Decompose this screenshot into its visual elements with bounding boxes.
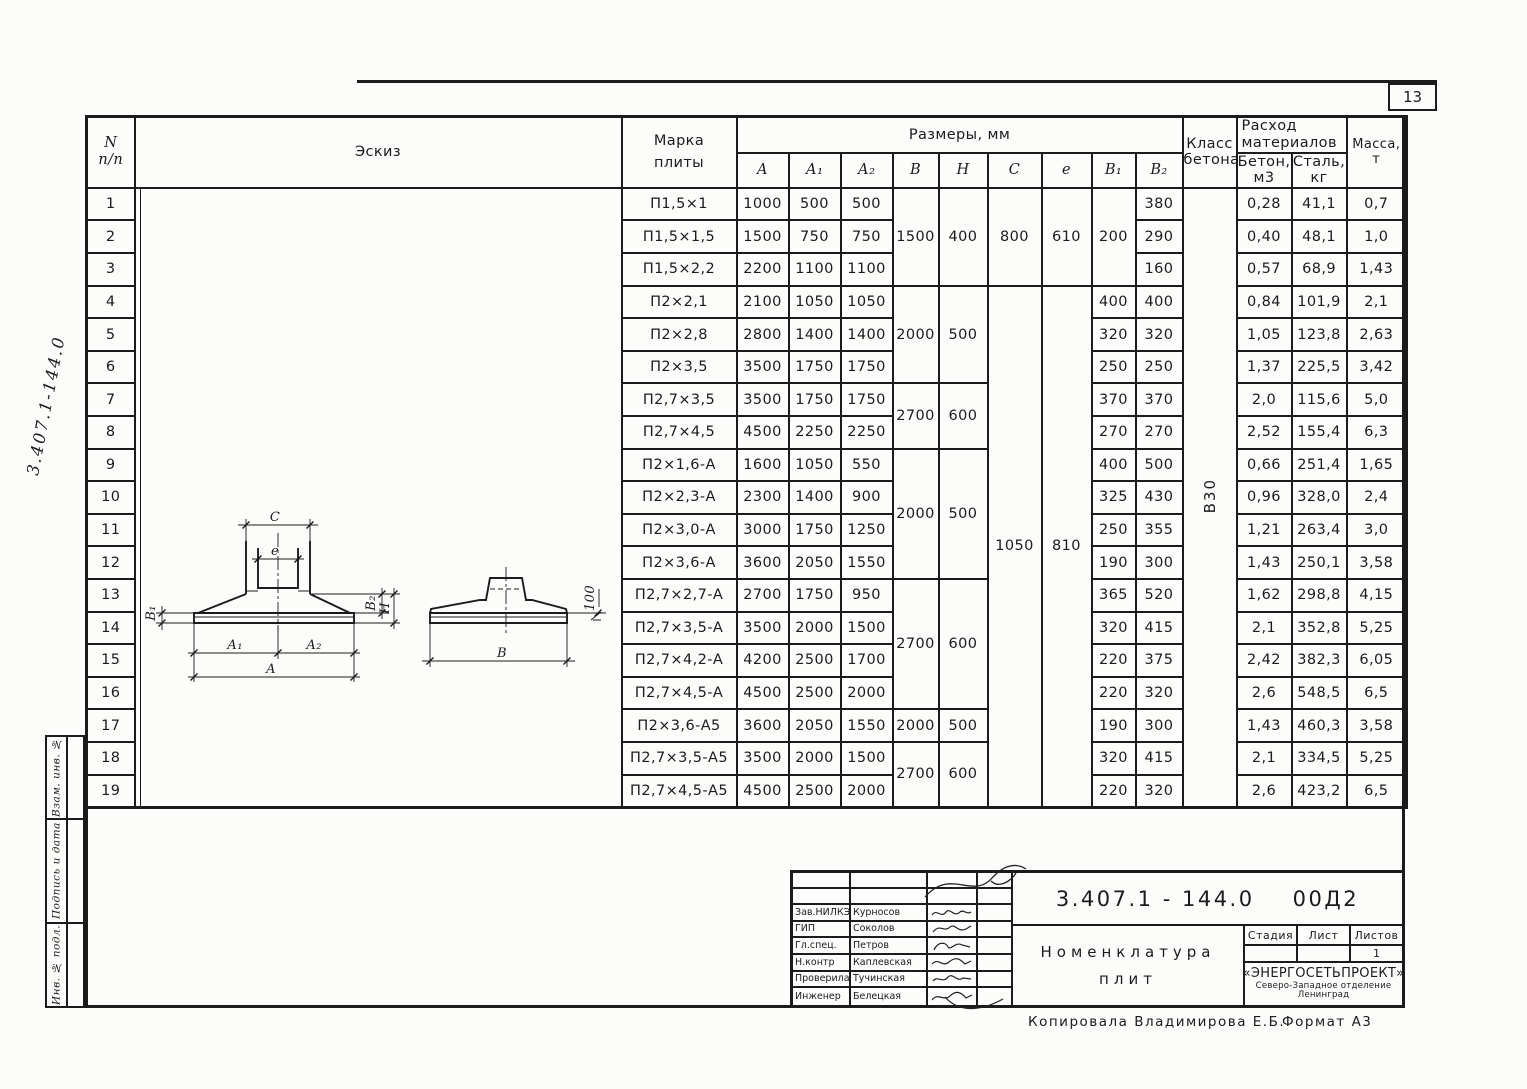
cell-h: 400	[939, 188, 988, 286]
sheets-label: Листов	[1351, 926, 1402, 944]
cell-n: 6	[87, 351, 135, 384]
cell-b: 2000	[893, 709, 939, 742]
cell-beton: 1,21	[1237, 514, 1292, 547]
cell-stal: 298,8	[1292, 579, 1347, 612]
cell-b1: 250	[1092, 351, 1136, 384]
cell-n: 19	[87, 775, 135, 808]
cell-a2: 500	[841, 188, 893, 221]
cell-n: 11	[87, 514, 135, 547]
cell-a2: 2000	[841, 775, 893, 808]
cell-stal: 68,9	[1292, 253, 1347, 286]
signature-scribble	[928, 972, 978, 989]
cell-massa: 5,0	[1347, 383, 1407, 416]
header-col-b1: В₁	[1092, 153, 1136, 188]
cell-stal: 328,0	[1292, 481, 1347, 514]
stage-label: Стадия	[1245, 926, 1298, 944]
cell-a: 2200	[737, 253, 789, 286]
cell-b1: 320	[1092, 742, 1136, 775]
header-col-c: С	[988, 153, 1042, 188]
cell-beton: 0,28	[1237, 188, 1292, 221]
stamp-label-vzam: Взам. инв. №	[47, 737, 66, 818]
cell-beton: 0,66	[1237, 449, 1292, 482]
sig-role: Проверила	[793, 972, 851, 989]
cell-h: 500	[939, 449, 988, 579]
cell-b1: 320	[1092, 318, 1136, 351]
cell-b2: 320	[1136, 318, 1183, 351]
sig-name: Петров	[851, 938, 928, 955]
cell-a1: 1750	[789, 579, 841, 612]
cell-b2: 380	[1136, 188, 1183, 221]
cell-c: 1050	[988, 286, 1042, 808]
cell-beton: 1,43	[1237, 546, 1292, 579]
dim-label-e: е	[270, 544, 278, 559]
cell-massa: 6,5	[1347, 677, 1407, 710]
cell-massa: 3,42	[1347, 351, 1407, 384]
cell-beton: 2,0	[1237, 383, 1292, 416]
cell-marka: П2×2,3-А	[622, 481, 737, 514]
header-col-b2: В₂	[1136, 153, 1183, 188]
cell-massa: 3,0	[1347, 514, 1407, 547]
dim-label-h: Н	[378, 602, 393, 615]
cell-marka: П2,7×3,5-А5	[622, 742, 737, 775]
cell-marka: П2×2,8	[622, 318, 737, 351]
cell-marka: П2×3,6-А	[622, 546, 737, 579]
cell-stal: 548,5	[1292, 677, 1347, 710]
cell-massa: 1,65	[1347, 449, 1407, 482]
sketch-centerlines	[278, 533, 506, 633]
cell-a1: 1050	[789, 286, 841, 319]
cell-beton: 1,43	[1237, 709, 1292, 742]
cell-massa: 5,25	[1347, 742, 1407, 775]
page-number-box: 13	[1388, 83, 1437, 111]
organization-name: «ЭНЕРГОСЕТЬПРОЕКТ»	[1243, 967, 1405, 982]
cell-a: 4500	[737, 416, 789, 449]
cell-marka: П2,7×4,2-А	[622, 644, 737, 677]
cell-a1: 2000	[789, 742, 841, 775]
document-title: Номенклатура плит	[1013, 926, 1245, 1005]
cell-a1: 1050	[789, 449, 841, 482]
document-suffix: 00Д2	[1293, 887, 1360, 911]
cell-marka: П2×3,5	[622, 351, 737, 384]
cell-stal: 155,4	[1292, 416, 1347, 449]
cell-beton: 0,57	[1237, 253, 1292, 286]
cell-stal: 334,5	[1292, 742, 1347, 775]
cell-n: 9	[87, 449, 135, 482]
cell-massa: 5,25	[1347, 612, 1407, 645]
header-col-a: А	[737, 153, 789, 188]
sheets-value: 1	[1351, 946, 1402, 961]
cell-a: 3500	[737, 351, 789, 384]
cell-a2: 1550	[841, 709, 893, 742]
cell-beton: 0,96	[1237, 481, 1292, 514]
cell-massa: 4,15	[1347, 579, 1407, 612]
cell-beton: 2,1	[1237, 612, 1292, 645]
document-number: 3.407.1 - 144.0	[1056, 887, 1255, 911]
stamp-box-podpis: Подпись и дата	[45, 818, 85, 924]
cell-a2: 1500	[841, 612, 893, 645]
header-sizes: Размеры, мм	[737, 117, 1183, 153]
cell-n: 3	[87, 253, 135, 286]
cell-stal: 48,1	[1292, 220, 1347, 253]
cell-stal: 101,9	[1292, 286, 1347, 319]
cell-a2: 1100	[841, 253, 893, 286]
cell-b: 2000	[893, 286, 939, 384]
stamp-box-inv: Инв. № подл.	[45, 922, 85, 1008]
cell-stal: 251,4	[1292, 449, 1347, 482]
signature-grid: Зав.НИЛКЭ Курносов ГИП Соколов Гл.спец. …	[793, 873, 1013, 1005]
cell-a1: 1400	[789, 318, 841, 351]
cell-a: 2300	[737, 481, 789, 514]
cell-a: 3600	[737, 709, 789, 742]
cell-stal: 250,1	[1292, 546, 1347, 579]
sketch-side-view-outline	[430, 578, 567, 623]
cell-marka: П2,7×3,5	[622, 383, 737, 416]
cell-beton: 2,42	[1237, 644, 1292, 677]
cell-a2: 2250	[841, 416, 893, 449]
cell-b: 2700	[893, 579, 939, 709]
cell-b2: 415	[1136, 612, 1183, 645]
cell-beton: 2,6	[1237, 775, 1292, 808]
cell-b2: 355	[1136, 514, 1183, 547]
cell-a1: 500	[789, 188, 841, 221]
cell-a2: 1400	[841, 318, 893, 351]
cell-n: 13	[87, 579, 135, 612]
cell-n: 5	[87, 318, 135, 351]
cell-concrete-class: В30	[1183, 188, 1237, 807]
cell-a: 1500	[737, 220, 789, 253]
stamp-box-vzam: Взам. инв. №	[45, 735, 85, 820]
sheet-label: Лист	[1298, 926, 1351, 944]
cell-stal: 225,5	[1292, 351, 1347, 384]
cell-a1: 2050	[789, 709, 841, 742]
cell-n: 10	[87, 481, 135, 514]
dim-label-b1: В₁	[144, 605, 159, 622]
stage-values-row: 1	[1245, 946, 1402, 963]
cell-b2: 290	[1136, 220, 1183, 253]
cell-n: 8	[87, 416, 135, 449]
title-block: Зав.НИЛКЭ Курносов ГИП Соколов Гл.спец. …	[790, 870, 1405, 1008]
sig-role: Инженер	[793, 988, 851, 1005]
dim-label-a: А	[264, 662, 275, 677]
cell-a1: 1750	[789, 351, 841, 384]
sketch-cell: С е В₁ В₂ Н А₁ А₂ А В 100	[135, 188, 622, 807]
cell-stal: 41,1	[1292, 188, 1347, 221]
cell-a1: 2500	[789, 644, 841, 677]
nomenclature-table: N п/п Эскиз Марка плиты Размеры, мм Клас…	[85, 115, 1408, 809]
cell-beton: 1,37	[1237, 351, 1292, 384]
cell-a2: 1700	[841, 644, 893, 677]
cell-b1: 220	[1092, 775, 1136, 808]
page-number: 13	[1403, 88, 1422, 106]
header-steel: Сталь, кг	[1292, 153, 1347, 188]
cell-b1: 270	[1092, 416, 1136, 449]
cell-beton: 1,62	[1237, 579, 1292, 612]
cell-a: 1600	[737, 449, 789, 482]
cell-b2: 250	[1136, 351, 1183, 384]
header-marka: Марка плиты	[622, 117, 737, 188]
sig-role: Н.контр	[793, 955, 851, 972]
cell-stal: 382,3	[1292, 644, 1347, 677]
header-col-h: Н	[939, 153, 988, 188]
cell-marka: П2×3,6-А5	[622, 709, 737, 742]
cell-a2: 750	[841, 220, 893, 253]
cell-marka: П2×1,6-А	[622, 449, 737, 482]
header-col-a2: А₂	[841, 153, 893, 188]
cell-a2: 1750	[841, 383, 893, 416]
cell-n: 4	[87, 286, 135, 319]
cell-stal: 352,8	[1292, 612, 1347, 645]
cell-a: 2800	[737, 318, 789, 351]
header-col-b: В	[893, 153, 939, 188]
cell-marka: П2,7×4,5	[622, 416, 737, 449]
cell-a2: 2000	[841, 677, 893, 710]
cell-b2: 520	[1136, 579, 1183, 612]
cell-massa: 2,4	[1347, 481, 1407, 514]
cell-marka: П2×3,0-А	[622, 514, 737, 547]
cell-stal: 123,8	[1292, 318, 1347, 351]
cell-e: 610	[1042, 188, 1092, 286]
organization-box: «ЭНЕРГОСЕТЬПРОЕКТ» Северо-Западное отдел…	[1245, 963, 1402, 1005]
cell-marka: П1,5×1,5	[622, 220, 737, 253]
cell-a1: 750	[789, 220, 841, 253]
cell-n: 17	[87, 709, 135, 742]
cell-a: 1000	[737, 188, 789, 221]
sig-role: Гл.спец.	[793, 938, 851, 955]
side-document-number: 3.407.1-144.0	[22, 329, 70, 482]
cell-marka: П2,7×4,5-А5	[622, 775, 737, 808]
cell-a1: 1750	[789, 383, 841, 416]
cell-massa: 1,43	[1347, 253, 1407, 286]
cell-b2: 415	[1136, 742, 1183, 775]
dim-label-b2: В₂	[364, 595, 379, 612]
cell-a1: 2250	[789, 416, 841, 449]
signature-scribble	[928, 938, 978, 955]
header-sketch: Эскиз	[135, 117, 622, 188]
cell-a2: 1500	[841, 742, 893, 775]
cell-a1: 2500	[789, 775, 841, 808]
cell-h: 600	[939, 742, 988, 807]
cell-b: 2700	[893, 383, 939, 448]
copied-by-note: Копировала Владимирова Е.Б.	[1028, 1014, 1285, 1030]
dim-label-c: С	[269, 510, 279, 525]
cell-beton: 2,6	[1237, 677, 1292, 710]
cell-b1: 220	[1092, 644, 1136, 677]
cell-a1: 2050	[789, 546, 841, 579]
cell-beton: 1,05	[1237, 318, 1292, 351]
signature-scribble	[928, 905, 978, 922]
cell-b1: 325	[1092, 481, 1136, 514]
cell-b1: 250	[1092, 514, 1136, 547]
signature-scribble	[928, 955, 978, 972]
cell-h: 500	[939, 709, 988, 742]
cell-beton: 2,52	[1237, 416, 1292, 449]
cell-b2: 400	[1136, 286, 1183, 319]
cell-a: 3600	[737, 546, 789, 579]
sig-role: Зав.НИЛКЭ	[793, 905, 851, 922]
sig-name: Белецкая	[851, 988, 928, 1005]
cell-marka: П2,7×4,5-А	[622, 677, 737, 710]
sheet-value	[1298, 946, 1351, 961]
cell-b2: 320	[1136, 775, 1183, 808]
sheet-top-border	[357, 80, 1437, 83]
cell-marka: П2,7×3,5-А	[622, 612, 737, 645]
cell-b2: 320	[1136, 677, 1183, 710]
cell-h: 600	[939, 383, 988, 448]
dim-label-b: В	[496, 646, 507, 661]
cell-n: 1	[87, 188, 135, 221]
plate-sketch: С е В₁ В₂ Н А₁ А₂ А В 100	[142, 501, 614, 693]
cell-b1: 365	[1092, 579, 1136, 612]
sig-name: Соколов	[851, 922, 928, 939]
header-mass: Масса, т	[1347, 117, 1407, 188]
cell-massa: 2,1	[1347, 286, 1407, 319]
cell-h: 600	[939, 579, 988, 709]
drawing-sheet: { "page": { "number": "13", "side_number…	[0, 0, 1527, 1089]
cell-b2: 430	[1136, 481, 1183, 514]
cell-beton: 2,1	[1237, 742, 1292, 775]
cell-n: 18	[87, 742, 135, 775]
cell-n: 7	[87, 383, 135, 416]
dim-label-slope: 100	[583, 585, 598, 611]
dim-label-a1: А₁	[226, 638, 243, 653]
cell-a2: 1050	[841, 286, 893, 319]
header-col-a1: А₁	[789, 153, 841, 188]
cell-b2: 500	[1136, 449, 1183, 482]
cell-stal: 423,2	[1292, 775, 1347, 808]
cell-a: 3500	[737, 612, 789, 645]
cell-a2: 950	[841, 579, 893, 612]
cell-massa: 1,0	[1347, 220, 1407, 253]
cell-b2: 160	[1136, 253, 1183, 286]
sig-role: ГИП	[793, 922, 851, 939]
sig-name: Тучинская	[851, 972, 928, 989]
stage-header-row: Стадия Лист Листов	[1245, 926, 1402, 946]
sig-name: Каплевская	[851, 955, 928, 972]
sig-name: Курносов	[851, 905, 928, 922]
cell-massa: 2,63	[1347, 318, 1407, 351]
cell-b: 2000	[893, 449, 939, 579]
cell-beton: 0,84	[1237, 286, 1292, 319]
cell-b2: 370	[1136, 383, 1183, 416]
cell-b1: 200	[1092, 188, 1136, 286]
document-number-box: 3.407.1 - 144.0 00Д2	[1013, 873, 1402, 926]
cell-a1: 2500	[789, 677, 841, 710]
cell-a2: 1250	[841, 514, 893, 547]
organization-city: Ленинград	[1298, 991, 1350, 1001]
cell-a1: 2000	[789, 612, 841, 645]
cell-b2: 270	[1136, 416, 1183, 449]
cell-stal: 115,6	[1292, 383, 1347, 416]
cell-a: 3500	[737, 742, 789, 775]
cell-a2: 900	[841, 481, 893, 514]
cell-massa: 6,05	[1347, 644, 1407, 677]
stamp-label-podpis: Подпись и дата	[47, 820, 66, 922]
cell-a: 2700	[737, 579, 789, 612]
cell-b1: 220	[1092, 677, 1136, 710]
cell-n: 12	[87, 546, 135, 579]
cell-a: 4500	[737, 775, 789, 808]
cell-a: 3500	[737, 383, 789, 416]
cell-n: 14	[87, 612, 135, 645]
cell-b1: 320	[1092, 612, 1136, 645]
cell-b2: 300	[1136, 546, 1183, 579]
cell-h: 500	[939, 286, 988, 384]
cell-e: 810	[1042, 286, 1092, 808]
cell-b1: 400	[1092, 449, 1136, 482]
cell-b1: 370	[1092, 383, 1136, 416]
cell-stal: 263,4	[1292, 514, 1347, 547]
cell-a2: 1750	[841, 351, 893, 384]
cell-a: 4500	[737, 677, 789, 710]
cell-b2: 375	[1136, 644, 1183, 677]
table-row: 1 С е В₁ В₂ Н А₁ А₂ А	[87, 188, 1407, 221]
header-concrete-class: Класс бетона	[1183, 117, 1237, 188]
cell-a2: 1550	[841, 546, 893, 579]
cell-n: 16	[87, 677, 135, 710]
header-concrete: Бетон, м3	[1237, 153, 1292, 188]
cell-marka: П2×2,1	[622, 286, 737, 319]
cell-massa: 6,3	[1347, 416, 1407, 449]
stage-value	[1245, 946, 1298, 961]
cell-a: 4200	[737, 644, 789, 677]
cell-a: 3000	[737, 514, 789, 547]
cell-b: 2700	[893, 742, 939, 807]
cell-b: 1500	[893, 188, 939, 286]
cell-b1: 190	[1092, 709, 1136, 742]
cell-c: 800	[988, 188, 1042, 286]
cell-massa: 0,7	[1347, 188, 1407, 221]
cell-massa: 6,5	[1347, 775, 1407, 808]
stamp-label-inv: Инв. № подл.	[47, 924, 66, 1006]
cell-b1: 190	[1092, 546, 1136, 579]
cell-a: 2100	[737, 286, 789, 319]
cell-n: 2	[87, 220, 135, 253]
header-row-number: N п/п	[87, 117, 135, 188]
cell-a1: 1750	[789, 514, 841, 547]
cell-marka: П1,5×2,2	[622, 253, 737, 286]
cell-stal: 460,3	[1292, 709, 1347, 742]
cell-n: 15	[87, 644, 135, 677]
header-consumption: Расход материалов	[1237, 117, 1347, 153]
signature-scribble	[928, 988, 978, 1005]
header-col-e: е	[1042, 153, 1092, 188]
cell-a2: 550	[841, 449, 893, 482]
cell-beton: 0,40	[1237, 220, 1292, 253]
dim-label-a2: А₂	[305, 638, 322, 653]
cell-marka: П2,7×2,7-А	[622, 579, 737, 612]
sketch-dimension-lines	[156, 519, 606, 682]
format-note: Формат А3	[1282, 1014, 1372, 1030]
signature-scribble	[928, 922, 978, 939]
cell-b1: 400	[1092, 286, 1136, 319]
cell-a1: 1100	[789, 253, 841, 286]
cell-marka: П1,5×1	[622, 188, 737, 221]
cell-massa: 3,58	[1347, 709, 1407, 742]
cell-a1: 1400	[789, 481, 841, 514]
cell-b2: 300	[1136, 709, 1183, 742]
cell-massa: 3,58	[1347, 546, 1407, 579]
